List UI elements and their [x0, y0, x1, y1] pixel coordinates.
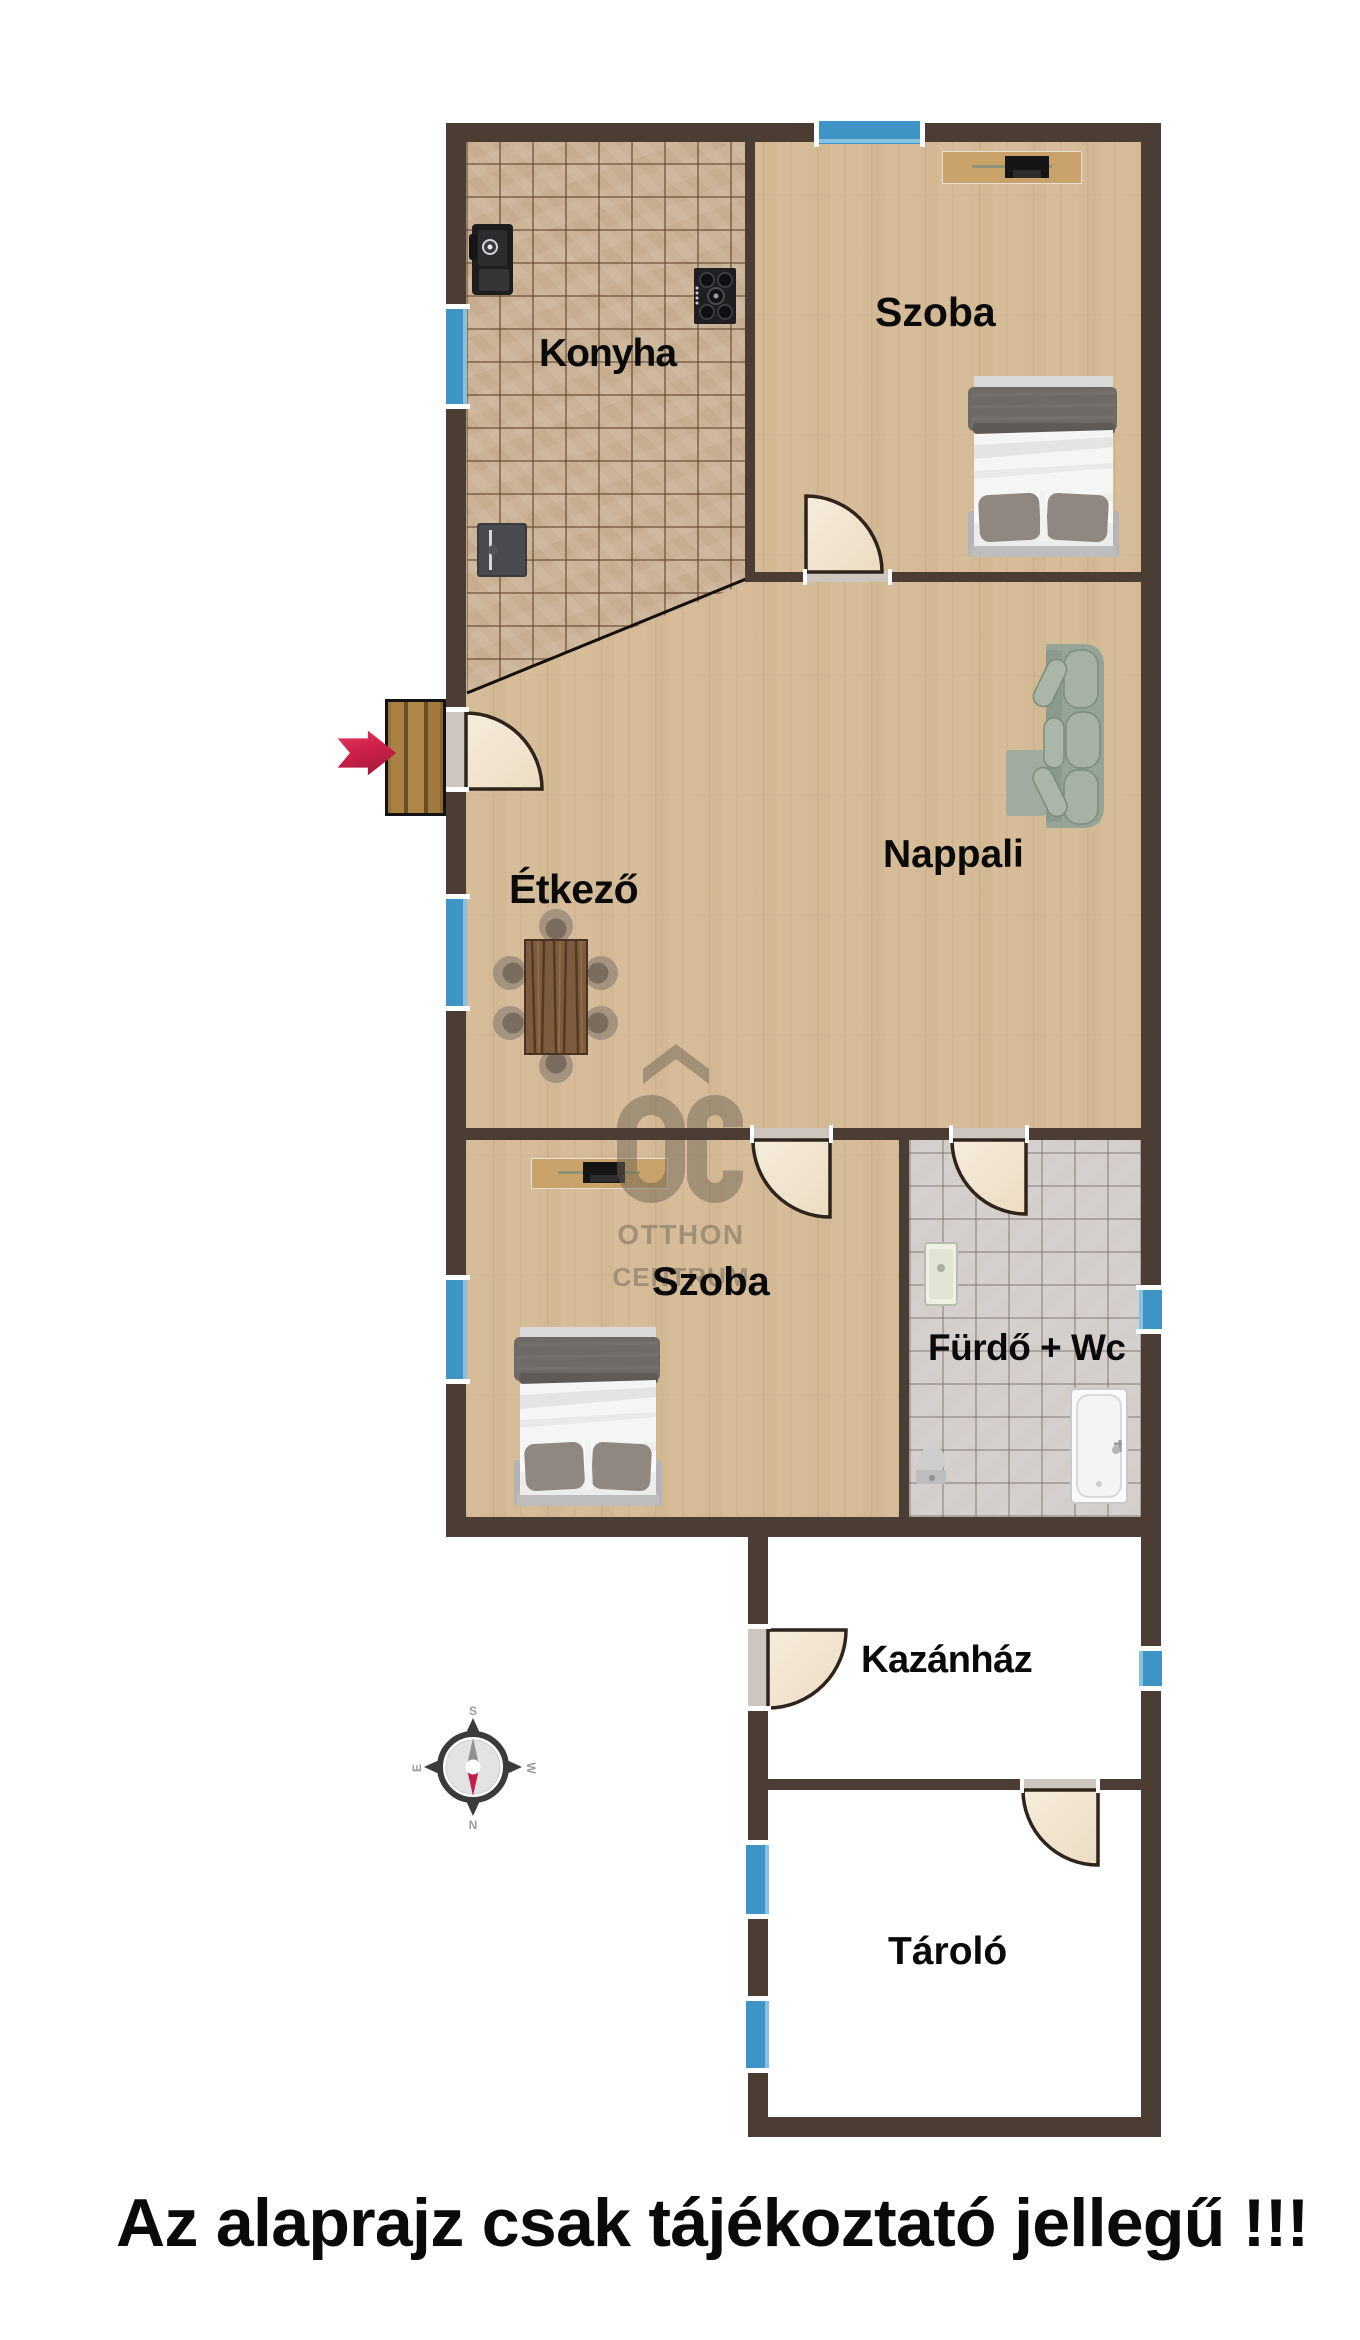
svg-text:OTTHON: OTTHON	[617, 1219, 744, 1250]
